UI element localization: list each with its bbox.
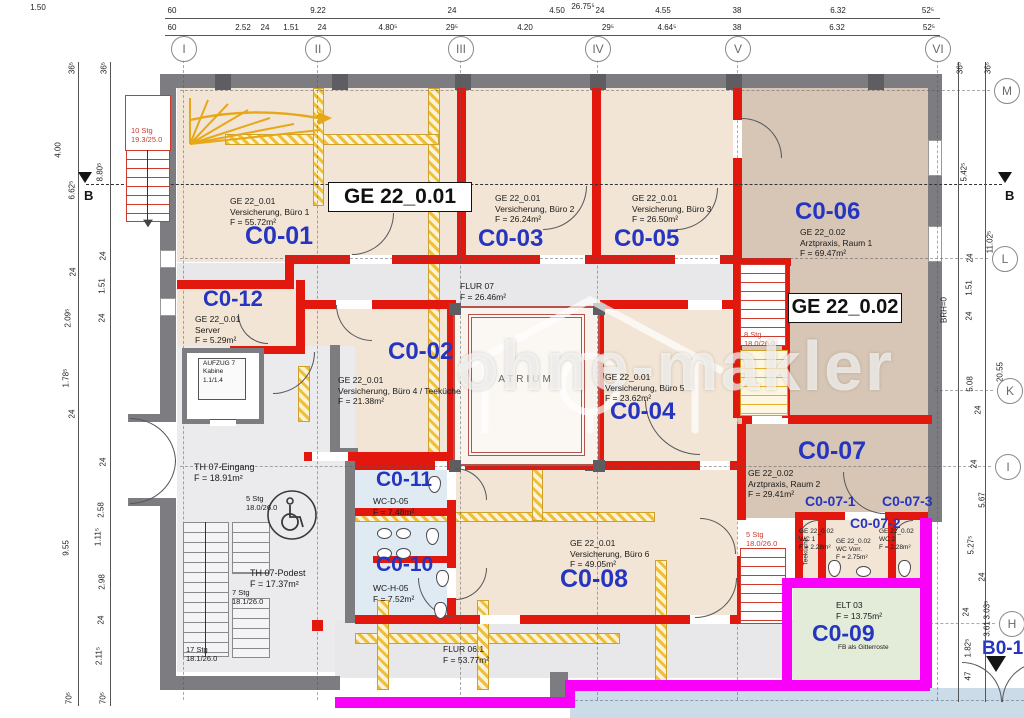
sink-icon xyxy=(396,528,411,539)
dimension-label: 60 xyxy=(168,23,177,32)
room-label-c0-10: C0-10 xyxy=(376,553,433,577)
atrium-post xyxy=(593,460,605,472)
dimension-label: 24 xyxy=(68,410,77,419)
window-gap xyxy=(160,298,176,316)
dimension-label: 36⁵ xyxy=(100,62,109,74)
dimension-label: 24 xyxy=(974,406,983,415)
room-label-c0-03: C0-03 xyxy=(478,225,543,253)
dimension-label: 29⁵ xyxy=(446,23,458,32)
dimension-label: 6.62⁵ xyxy=(68,181,77,200)
dimension-label: 6.32 xyxy=(829,23,845,32)
dimension-label: 2.98 xyxy=(98,574,107,590)
grid-bubble-I2: I xyxy=(995,454,1021,480)
door-gap xyxy=(675,255,720,264)
stair-text-7stg: 7 Stg 18.1/26.0 xyxy=(232,588,263,607)
dimension-label: 36⁵ xyxy=(68,62,77,74)
dimension-label: 2.09⁵ xyxy=(64,309,73,328)
dimension-label: 3.03⁵ xyxy=(983,601,992,620)
room-label-c0-09: C0-09 xyxy=(812,620,875,647)
dimension-label: BRH=0 xyxy=(940,297,949,323)
dimension-label: 38 xyxy=(733,6,742,15)
dimension-label: 36⁵ xyxy=(956,62,965,74)
dimension-label: 24 xyxy=(965,312,974,321)
window-gap xyxy=(928,140,942,176)
wall-top-pillar xyxy=(215,74,231,90)
dimension-label: 52⁵ xyxy=(922,6,934,15)
dimension-label: 11.02⁵ xyxy=(986,231,995,254)
room-label-c0-12: C0-12 xyxy=(203,286,263,312)
red-wall-c0-12-conn xyxy=(285,263,294,289)
dimension-label: 38 xyxy=(733,23,742,32)
window-gap xyxy=(928,226,942,262)
room-desc-c0-02: GE 22_0.01 Versicherung, Büro 4 / Teeküc… xyxy=(338,375,461,407)
dimension-label: 24 xyxy=(98,314,107,323)
dimension-label: 1.51 xyxy=(98,278,107,294)
dimension-label: 60 xyxy=(168,6,177,15)
room-desc-c0-06: GE 22_0.02 Arztpraxis, Raum 1 F = 69.47m… xyxy=(800,227,872,259)
section-line-B xyxy=(86,184,1002,185)
dimension-label: 24 xyxy=(261,23,270,32)
magenta-boundary-right xyxy=(920,518,932,688)
room-desc-c0-08: GE 22_0.01 Versicherung, Büro 6 F = 49.0… xyxy=(570,538,649,570)
dimension-label: 47 xyxy=(964,672,973,681)
door-gap xyxy=(540,255,585,264)
dimension-label: 24 xyxy=(448,6,457,15)
dimension-label: 24 xyxy=(596,6,605,15)
room-desc-c0-05: GE 22_0.01 Versicherung, Büro 3 F = 26.5… xyxy=(632,193,711,225)
elevator-label: AUFZUG 7 Kabine 1.1/1.4 xyxy=(203,360,235,385)
dimension-line xyxy=(78,62,79,706)
dimension-label: 9.55 xyxy=(62,540,71,556)
stair-podest-main xyxy=(183,522,229,657)
dimension-label: 70⁵ xyxy=(99,692,108,704)
room-desc-c0-07-3: GE 22_0.02 WC 2 F = 2.28m² xyxy=(879,528,914,552)
magenta-boundary-bottom-right xyxy=(565,680,930,691)
room-note-c0-09: FB als Gitterroste xyxy=(838,644,889,652)
wall-right-upper xyxy=(928,74,942,326)
dimension-label: 1.11⁵ xyxy=(94,528,103,546)
dimension-label: 24 xyxy=(978,573,987,582)
dimension-label: 24 xyxy=(318,23,327,32)
dimension-label: 4.64⁵ xyxy=(658,23,677,32)
stair-text-5stg: 5 Stg 18.0/26.0 xyxy=(246,494,277,513)
grid-bubble-I: I xyxy=(171,36,197,62)
stair-podest-lower xyxy=(232,598,270,658)
dimension-label: 9.22 xyxy=(310,6,326,15)
room-desc-c0-04: GE 22_0.01 Versicherung, Büro 5 F = 23.6… xyxy=(605,372,684,404)
dimension-label: 24 xyxy=(99,458,108,467)
section-marker-b-right: B xyxy=(1005,188,1014,203)
wall-left-mid xyxy=(160,362,176,420)
dimension-label: 8.80⁵ xyxy=(96,163,105,182)
dimension-label: 4.50 xyxy=(549,6,565,15)
stair-text-10stg: 10 Stg 19.3/25.0 xyxy=(131,126,162,145)
room-desc-c0-07-1: GE 22_0.02 WC 1 F = 2.28m² xyxy=(799,528,834,552)
exterior-dash-line xyxy=(575,700,1024,701)
entry-marker-triangle xyxy=(986,656,1006,672)
dimension-label: 36⁵ xyxy=(984,62,993,74)
grid-line-M xyxy=(180,90,990,91)
dimension-label: 5.27⁵ xyxy=(967,536,976,555)
door-gap xyxy=(480,615,520,624)
dimension-label: 4.80⁵ xyxy=(379,23,398,32)
wall-wc-left xyxy=(345,458,355,623)
grid-bubble-H: H xyxy=(999,611,1024,637)
stair-arrow-line xyxy=(205,522,206,657)
yellow-wall-flur-vert-3 xyxy=(655,560,667,690)
stair-text-17stg: 17 Stg 18.1/26.0 xyxy=(186,645,217,664)
room-desc-c0-10: WC-H-05 F = 7.52m² xyxy=(373,583,414,604)
dimension-label: 70⁵ xyxy=(65,692,74,704)
dimension-label: 5.42⁵ xyxy=(960,163,969,182)
dimension-label: 3.61 xyxy=(983,621,992,637)
dimension-corner: 1.50 xyxy=(30,3,46,12)
stair-right-low xyxy=(740,548,786,624)
dimension-label: 5.67 xyxy=(978,492,987,508)
sink-icon xyxy=(856,566,871,577)
section-marker-triangle-right xyxy=(998,172,1012,183)
corridor-desc-flur061: FLUR 06.1 F = 53.77m² xyxy=(443,644,489,665)
room-desc-c0-07-2: GE 22_0.02 WC Vorr. F = 2.75m² xyxy=(836,538,871,562)
dimension-label: 24 xyxy=(966,254,975,263)
dimension-label: 24 xyxy=(69,268,78,277)
magenta-boundary-c0-09-left xyxy=(782,578,792,688)
dimension-label: 1.51 xyxy=(965,280,974,296)
grid-bubble-V: V xyxy=(725,36,751,62)
zone-box-ge-22-0-02: GE 22_0.02 xyxy=(788,293,902,323)
dimension-label: 4.20 xyxy=(517,23,533,32)
section-marker-triangle-left xyxy=(78,172,92,183)
room-label-c0-06: C0-06 xyxy=(795,198,860,226)
door-arc-entry xyxy=(130,418,176,462)
wall-top-pillar xyxy=(868,74,884,90)
grid-bubble-II: II xyxy=(305,36,331,62)
dimension-label: 6.32 xyxy=(830,6,846,15)
stair-top-left xyxy=(126,150,170,222)
dimension-label: 24 xyxy=(962,608,971,617)
door-gap xyxy=(350,255,392,264)
magenta-boundary-c0-09-top xyxy=(782,578,928,588)
dimension-label: 4.55 xyxy=(655,6,671,15)
dimension-label: 29⁵ xyxy=(602,23,614,32)
exterior-pale-blue xyxy=(570,688,1024,718)
dimension-label: 4.00 xyxy=(54,142,63,158)
grid-bubble-IV: IV xyxy=(585,36,611,62)
room-label-c0-07-3: C0-07-3 xyxy=(882,493,933,509)
room-label-c0-05: C0-05 xyxy=(614,225,679,253)
dimension-label: 2.52 xyxy=(235,23,251,32)
room-desc-c0-09: ELT 03 F = 13.75m² xyxy=(836,600,882,621)
dimension-line xyxy=(110,62,111,706)
floor-plan-canvas: AUFZUG 7 Kabine 1.1/1.4 GE 22_0.01 GE 22… xyxy=(0,0,1024,718)
red-wall-c0-02-top xyxy=(304,300,447,309)
dimension-label: 1.82⁵ xyxy=(964,639,973,658)
dimension-label: 24 xyxy=(97,616,106,625)
dimension-line xyxy=(165,18,940,19)
wall-bottom-left xyxy=(160,676,340,690)
zone-box-ge-22-0-01: GE 22_0.01 xyxy=(328,182,472,212)
dimension-label: 24 xyxy=(970,460,979,469)
grid-bubble-VI: VI xyxy=(925,36,951,62)
red-wall-c0-12-right xyxy=(296,280,305,354)
dimension-label: 1.78⁵ xyxy=(62,369,71,388)
dimension-label: 52⁵ xyxy=(923,23,935,32)
grid-bubble-L: L xyxy=(992,246,1018,272)
grid-bubble-III: III xyxy=(448,36,474,62)
dimension-label: 24 xyxy=(99,252,108,261)
room-desc-c0-07: GE 22_0.02 Arztpraxis, Raum 2 F = 29.41m… xyxy=(748,468,820,500)
room-label-c0-07: C0-07 xyxy=(798,437,866,466)
yellow-fan-stair xyxy=(182,92,332,147)
magenta-boundary-bottom-left xyxy=(335,697,575,708)
grid-line-I-right xyxy=(180,466,991,467)
dimension-label: 2.11⁵ xyxy=(95,647,104,665)
stair-text-5stg-right: 5 Stg 18.0/26.0 xyxy=(746,530,777,549)
stair-arrow-line xyxy=(147,150,148,222)
red-wall-c0-08-bottom xyxy=(355,615,746,624)
room-desc-c0-03: GE 22_0.01 Versicherung, Büro 2 F = 26.2… xyxy=(495,193,574,225)
stair-arrow-head xyxy=(143,220,153,228)
dimension-total: 26.75⁵ xyxy=(571,2,594,11)
sink-icon xyxy=(377,528,392,539)
room-desc-c0-11: WC-D-05 F = 7.48m² xyxy=(373,496,414,517)
wall-top-pillar xyxy=(332,74,348,90)
wall-top xyxy=(160,74,935,88)
yellow-wall-flur-vert-1 xyxy=(377,600,389,690)
elevator-door xyxy=(210,419,236,426)
wall-left-lower xyxy=(160,498,176,690)
section-marker-b-left: B xyxy=(84,188,93,203)
dimension-label: 1.51 xyxy=(283,23,299,32)
room-desc-th-eingang: TH 07-Eingang F = 18.91m² xyxy=(194,462,255,485)
red-wall-divider-c0-01-03 xyxy=(457,88,466,255)
dimension-line xyxy=(165,35,940,36)
room-desc-c0-01: GE 22_0.01 Versicherung, Büro 1 F = 55.7… xyxy=(230,196,309,228)
room-desc-c0-12: GE 22_0.01 Server F = 5.29m² xyxy=(195,314,240,346)
grid-bubble-M: M xyxy=(994,78,1020,104)
dimension-label: 2.58 xyxy=(97,502,106,518)
grid-line-II xyxy=(317,60,318,700)
stair-podest-upper xyxy=(232,522,270,574)
room-label-c0-11: C0-11 xyxy=(376,468,432,492)
window-gap xyxy=(160,250,176,268)
